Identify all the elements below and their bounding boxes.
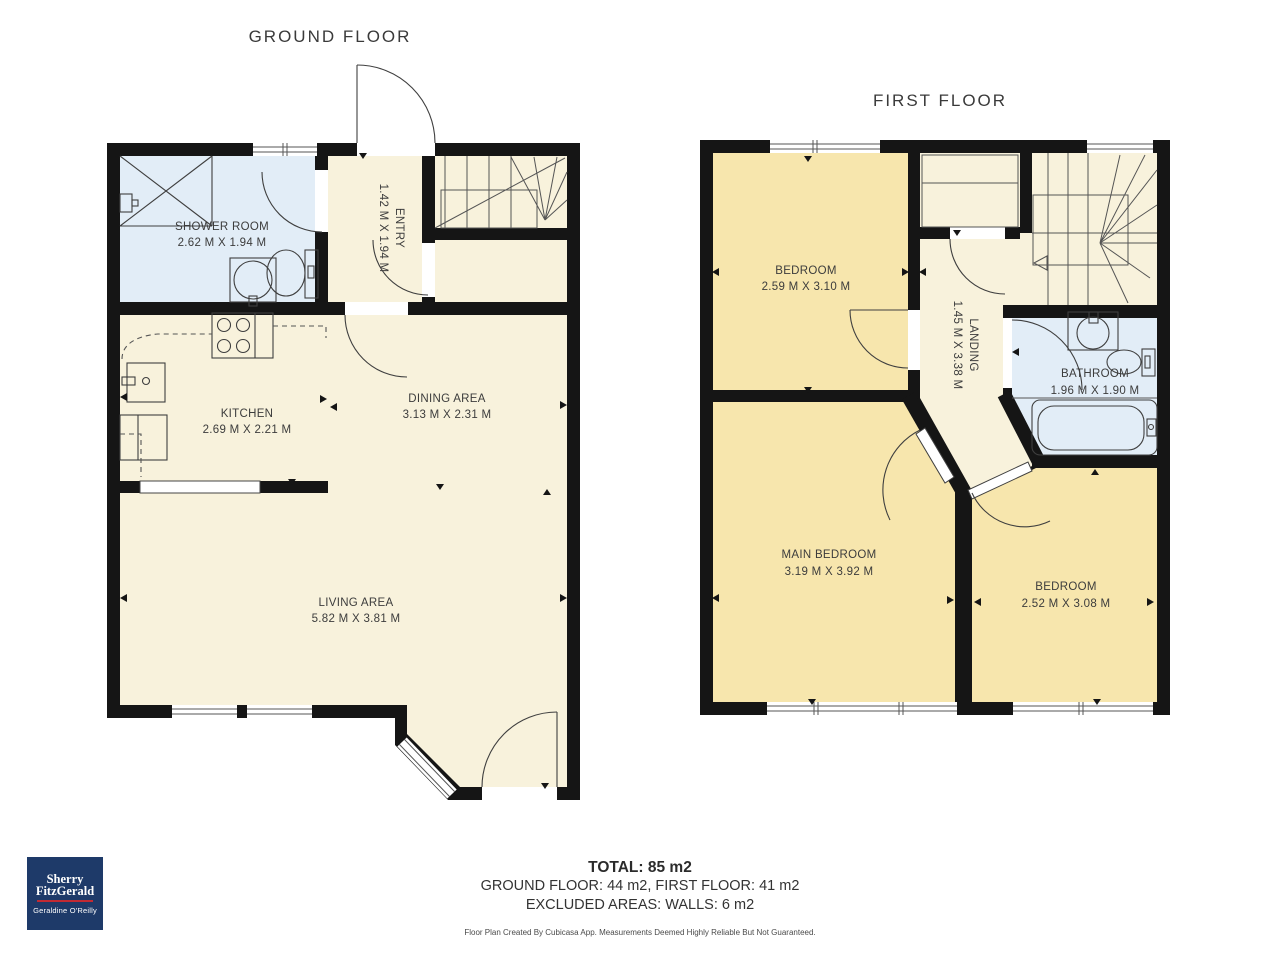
agency-logo: Sherry FitzGerald Geraldine O'Reilly	[27, 857, 103, 930]
window-main-bedroom-bottom	[767, 702, 957, 715]
agency-brand: Sherry FitzGerald	[36, 873, 94, 897]
bedroom2-label: BEDROOM	[1035, 581, 1097, 593]
wall-mid-band	[107, 302, 580, 315]
disclaimer-text: Floor Plan Created By Cubicasa App. Meas…	[0, 928, 1280, 937]
logo-red-rule	[37, 900, 93, 902]
dining-area-label: DINING AREA	[408, 393, 485, 405]
shower-room-label: SHOWER ROOM	[175, 221, 269, 233]
stairs-floor-first	[1032, 153, 1157, 305]
bedroom1-door-gap	[908, 310, 920, 370]
floor-plan-canvas: GROUND FLOOR SHOWER ROOM 2.62 M X 1.94 M…	[0, 0, 1280, 960]
entry-dims: 1.42 M X 1.94 M	[377, 184, 389, 273]
shower-door-gap	[315, 170, 328, 232]
wall-bedroom1-bottom	[700, 390, 920, 402]
kitchen-label: KITCHEN	[221, 408, 274, 420]
first-floor-title: FIRST FLOOR	[873, 91, 1007, 110]
window-stairs-top	[1087, 140, 1153, 153]
total-area: TOTAL: 85 m2	[0, 858, 1280, 877]
window-living-1	[172, 705, 237, 718]
main-bedroom-dims: 3.19 M X 3.92 M	[785, 566, 874, 578]
wall-stairs-bottom	[433, 228, 580, 240]
understair-closet-floor	[435, 240, 567, 302]
landing-dims: 1.45 M X 3.38 M	[951, 301, 963, 390]
bathroom-door-gap	[1003, 318, 1012, 388]
wall-landing-stairs	[1020, 140, 1032, 233]
living-area-label: LIVING AREA	[319, 597, 394, 609]
kitchen-dims: 2.69 M X 2.21 M	[203, 424, 292, 436]
bathroom-label: BATHROOM	[1061, 368, 1129, 380]
bedroom1-label: BEDROOM	[775, 265, 837, 277]
floor-areas: GROUND FLOOR: 44 m2, FIRST FLOOR: 41 m2	[0, 877, 1280, 896]
window-bedroom1-top	[770, 140, 880, 153]
main-bedroom-label: MAIN BEDROOM	[782, 549, 877, 561]
window-bedroom2-bottom	[1013, 702, 1153, 715]
dining-area-dims: 3.13 M X 2.31 M	[403, 409, 492, 421]
excluded-areas: EXCLUDED AREAS: WALLS: 6 m2	[0, 896, 1280, 915]
entry-floor	[328, 156, 422, 302]
landing-label: LANDING	[967, 318, 979, 371]
entry-label: ENTRY	[393, 208, 405, 248]
agency-brand-line1: Sherry	[36, 873, 94, 885]
bathroom-dims: 1.96 M X 1.90 M	[1051, 385, 1140, 397]
agent-name: Geraldine O'Reilly	[33, 906, 97, 915]
front-door-gap	[357, 143, 435, 156]
window-ground-top	[253, 143, 317, 156]
ground-floor-title: GROUND FLOOR	[249, 27, 412, 46]
closet-door-gap	[422, 243, 435, 297]
window-living-2	[247, 705, 312, 718]
kitchen-pass-through-counter	[140, 481, 260, 493]
shower-room-dims: 2.62 M X 1.94 M	[178, 237, 267, 249]
wall-bedroom-divider	[955, 488, 967, 702]
bedroom1-dims: 2.59 M X 3.10 M	[762, 281, 851, 293]
living-door-gap	[482, 787, 557, 800]
dining-door-gap	[345, 302, 408, 315]
first-floor-plan: FIRST FLOOR BEDROOM 2.59 M X 3.10 M LAND…	[700, 91, 1170, 715]
living-area-dims: 5.82 M X 3.81 M	[312, 613, 401, 625]
agency-brand-line2: FitzGerald	[36, 885, 94, 897]
wall-bathroom-bottom	[1032, 455, 1170, 468]
summary-footer: TOTAL: 85 m2 GROUND FLOOR: 44 m2, FIRST …	[0, 858, 1280, 937]
ground-floor-plan: GROUND FLOOR SHOWER ROOM 2.62 M X 1.94 M…	[107, 27, 580, 800]
bedroom2-dims: 2.52 M X 3.08 M	[1022, 598, 1111, 610]
front-door-swing	[357, 65, 435, 143]
